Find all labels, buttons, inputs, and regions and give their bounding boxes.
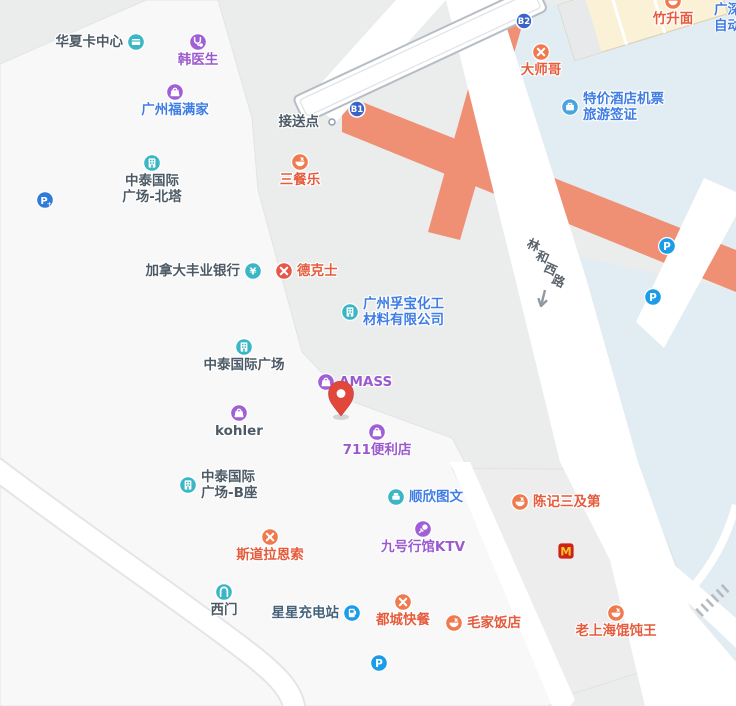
poi-label-shunxin-print: 顺欣图文 — [409, 489, 463, 505]
poi-label-sancanle: 三餐乐 — [280, 172, 321, 188]
poi-label-chenji-sanjidi: 陈记三及第 — [533, 494, 601, 510]
medical-icon — [188, 32, 208, 52]
building-icon — [340, 302, 360, 322]
poi-label-pickup-point: 接送点 — [279, 114, 320, 130]
poi-label-zhongtai-tower-b: 中泰国际广场-B座 — [201, 469, 257, 501]
svg-text:B2: B2 — [518, 17, 530, 27]
svg-text:B1: B1 — [351, 105, 363, 115]
svg-text:+: + — [47, 200, 52, 208]
bowl-icon — [510, 492, 530, 512]
poi-label-stora-enso: 斯道拉恩索 — [236, 547, 304, 563]
poi-label-fubao-chemical: 广州孚宝化工材料有限公司 — [363, 296, 444, 328]
svg-text:P: P — [375, 658, 383, 670]
printer-icon — [386, 487, 406, 507]
poi-label-star-charging: 星星充电站 — [272, 605, 340, 621]
poi-label-zhongtai-plaza: 中泰国际广场 — [204, 357, 285, 373]
poi-label-zhongtai-north-tower: 中泰国际广场-北塔 — [122, 173, 182, 205]
parking-plus-icon: P+ — [35, 190, 55, 210]
poi-label-dashige: 大师哥 — [521, 62, 562, 78]
bowl-icon — [663, 0, 683, 11]
poi-label-west-gate: 西门 — [211, 602, 238, 618]
parking-icon: P — [643, 287, 663, 307]
map-canvas[interactable]: 林和西路 广深 自动 华夏卡中心韩医生广州福满家中泰国际广场-北塔P+接送点三餐… — [0, 0, 736, 706]
building-icon — [234, 337, 254, 357]
corner-poi-line1: 广深 — [714, 2, 736, 18]
poi-label-han-doctor: 韩医生 — [178, 52, 219, 68]
poi-label-maojia-restaurant: 毛家饭店 — [467, 615, 521, 631]
utensils-icon — [274, 261, 294, 281]
mic-icon — [413, 519, 433, 539]
bag-icon — [165, 82, 185, 102]
dot-icon — [322, 112, 342, 132]
mcd-icon: M — [556, 541, 576, 561]
svg-text:P: P — [649, 292, 657, 304]
yen-icon: ¥ — [243, 261, 263, 281]
svg-text:P: P — [663, 241, 671, 253]
svg-text:¥: ¥ — [250, 267, 257, 278]
bowl-icon — [290, 152, 310, 172]
building-icon — [142, 153, 162, 173]
corner-poi-line2: 自动 — [714, 18, 736, 34]
poi-label-dicos: 德克士 — [297, 263, 338, 279]
utensils-icon — [260, 527, 280, 547]
location-pin[interactable] — [324, 378, 358, 422]
bag-icon — [229, 403, 249, 423]
charger-icon — [342, 603, 362, 623]
corner-poi-label: 广深 自动 — [714, 2, 736, 34]
bowl-icon — [606, 603, 626, 623]
parking-icon: P — [369, 653, 389, 673]
poi-label-guangzhou-fumanjia: 广州福满家 — [141, 102, 209, 118]
poi-label-ducheng-fastfood: 都城快餐 — [376, 612, 430, 628]
bowl-icon — [444, 613, 464, 633]
poi-label-kohler: kohler — [215, 423, 263, 439]
travel-icon — [560, 97, 580, 117]
utensils-icon — [393, 592, 413, 612]
utensils-icon — [531, 42, 551, 62]
poi-label-scotiabank-canada: 加拿大丰业银行 — [146, 263, 241, 279]
building-icon — [178, 475, 198, 495]
gate-icon — [214, 582, 234, 602]
card-icon — [126, 32, 146, 52]
poi-label-zhushengmian: 竹升面 — [653, 11, 694, 27]
bag-icon — [367, 422, 387, 442]
svg-text:M: M — [560, 544, 571, 558]
poi-label-ktv-no9: 九号行馆KTV — [381, 539, 465, 555]
poi-label-store-711: 711便利店 — [343, 442, 412, 458]
poi-label-hotel-flight-deals: 特价酒店机票旅游签证 — [583, 91, 664, 123]
poi-label-old-shanghai-wonton: 老上海馄饨王 — [576, 623, 657, 639]
poi-label-huaxia-card-center: 华夏卡中心 — [56, 34, 124, 50]
parking-icon: P — [657, 236, 677, 256]
